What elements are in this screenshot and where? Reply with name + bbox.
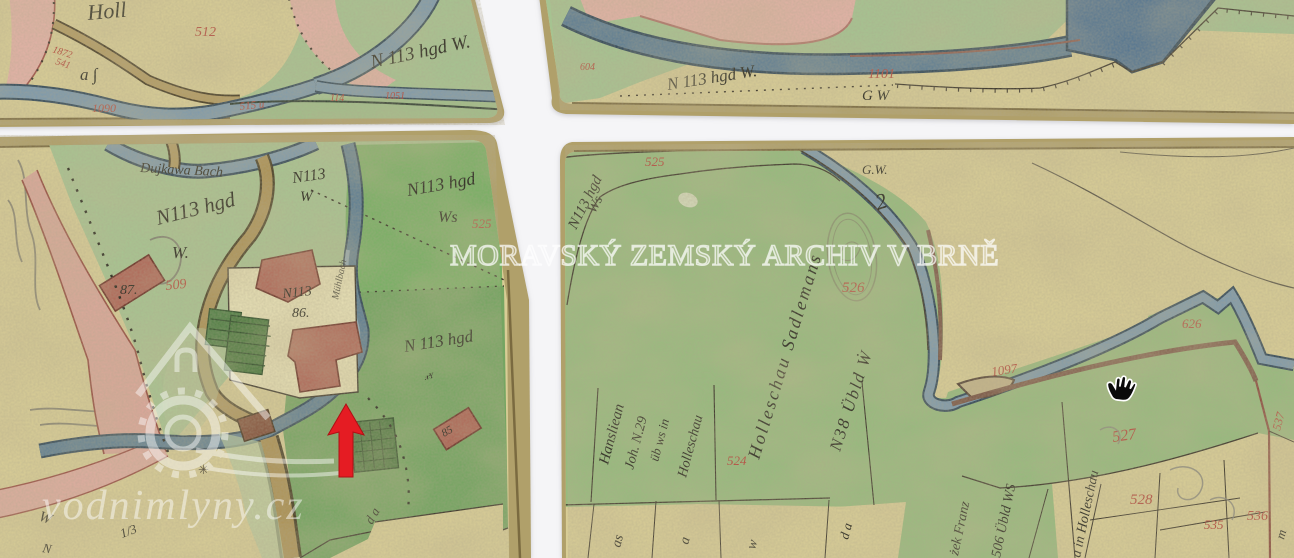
svg-text:MORAVSKÝ ZEMSKÝ ARCHIV V BRNĚ: MORAVSKÝ ZEMSKÝ ARCHIV V BRNĚ: [450, 239, 999, 272]
svg-text:vodnimlyny.cz: vodnimlyny.cz: [42, 483, 305, 529]
